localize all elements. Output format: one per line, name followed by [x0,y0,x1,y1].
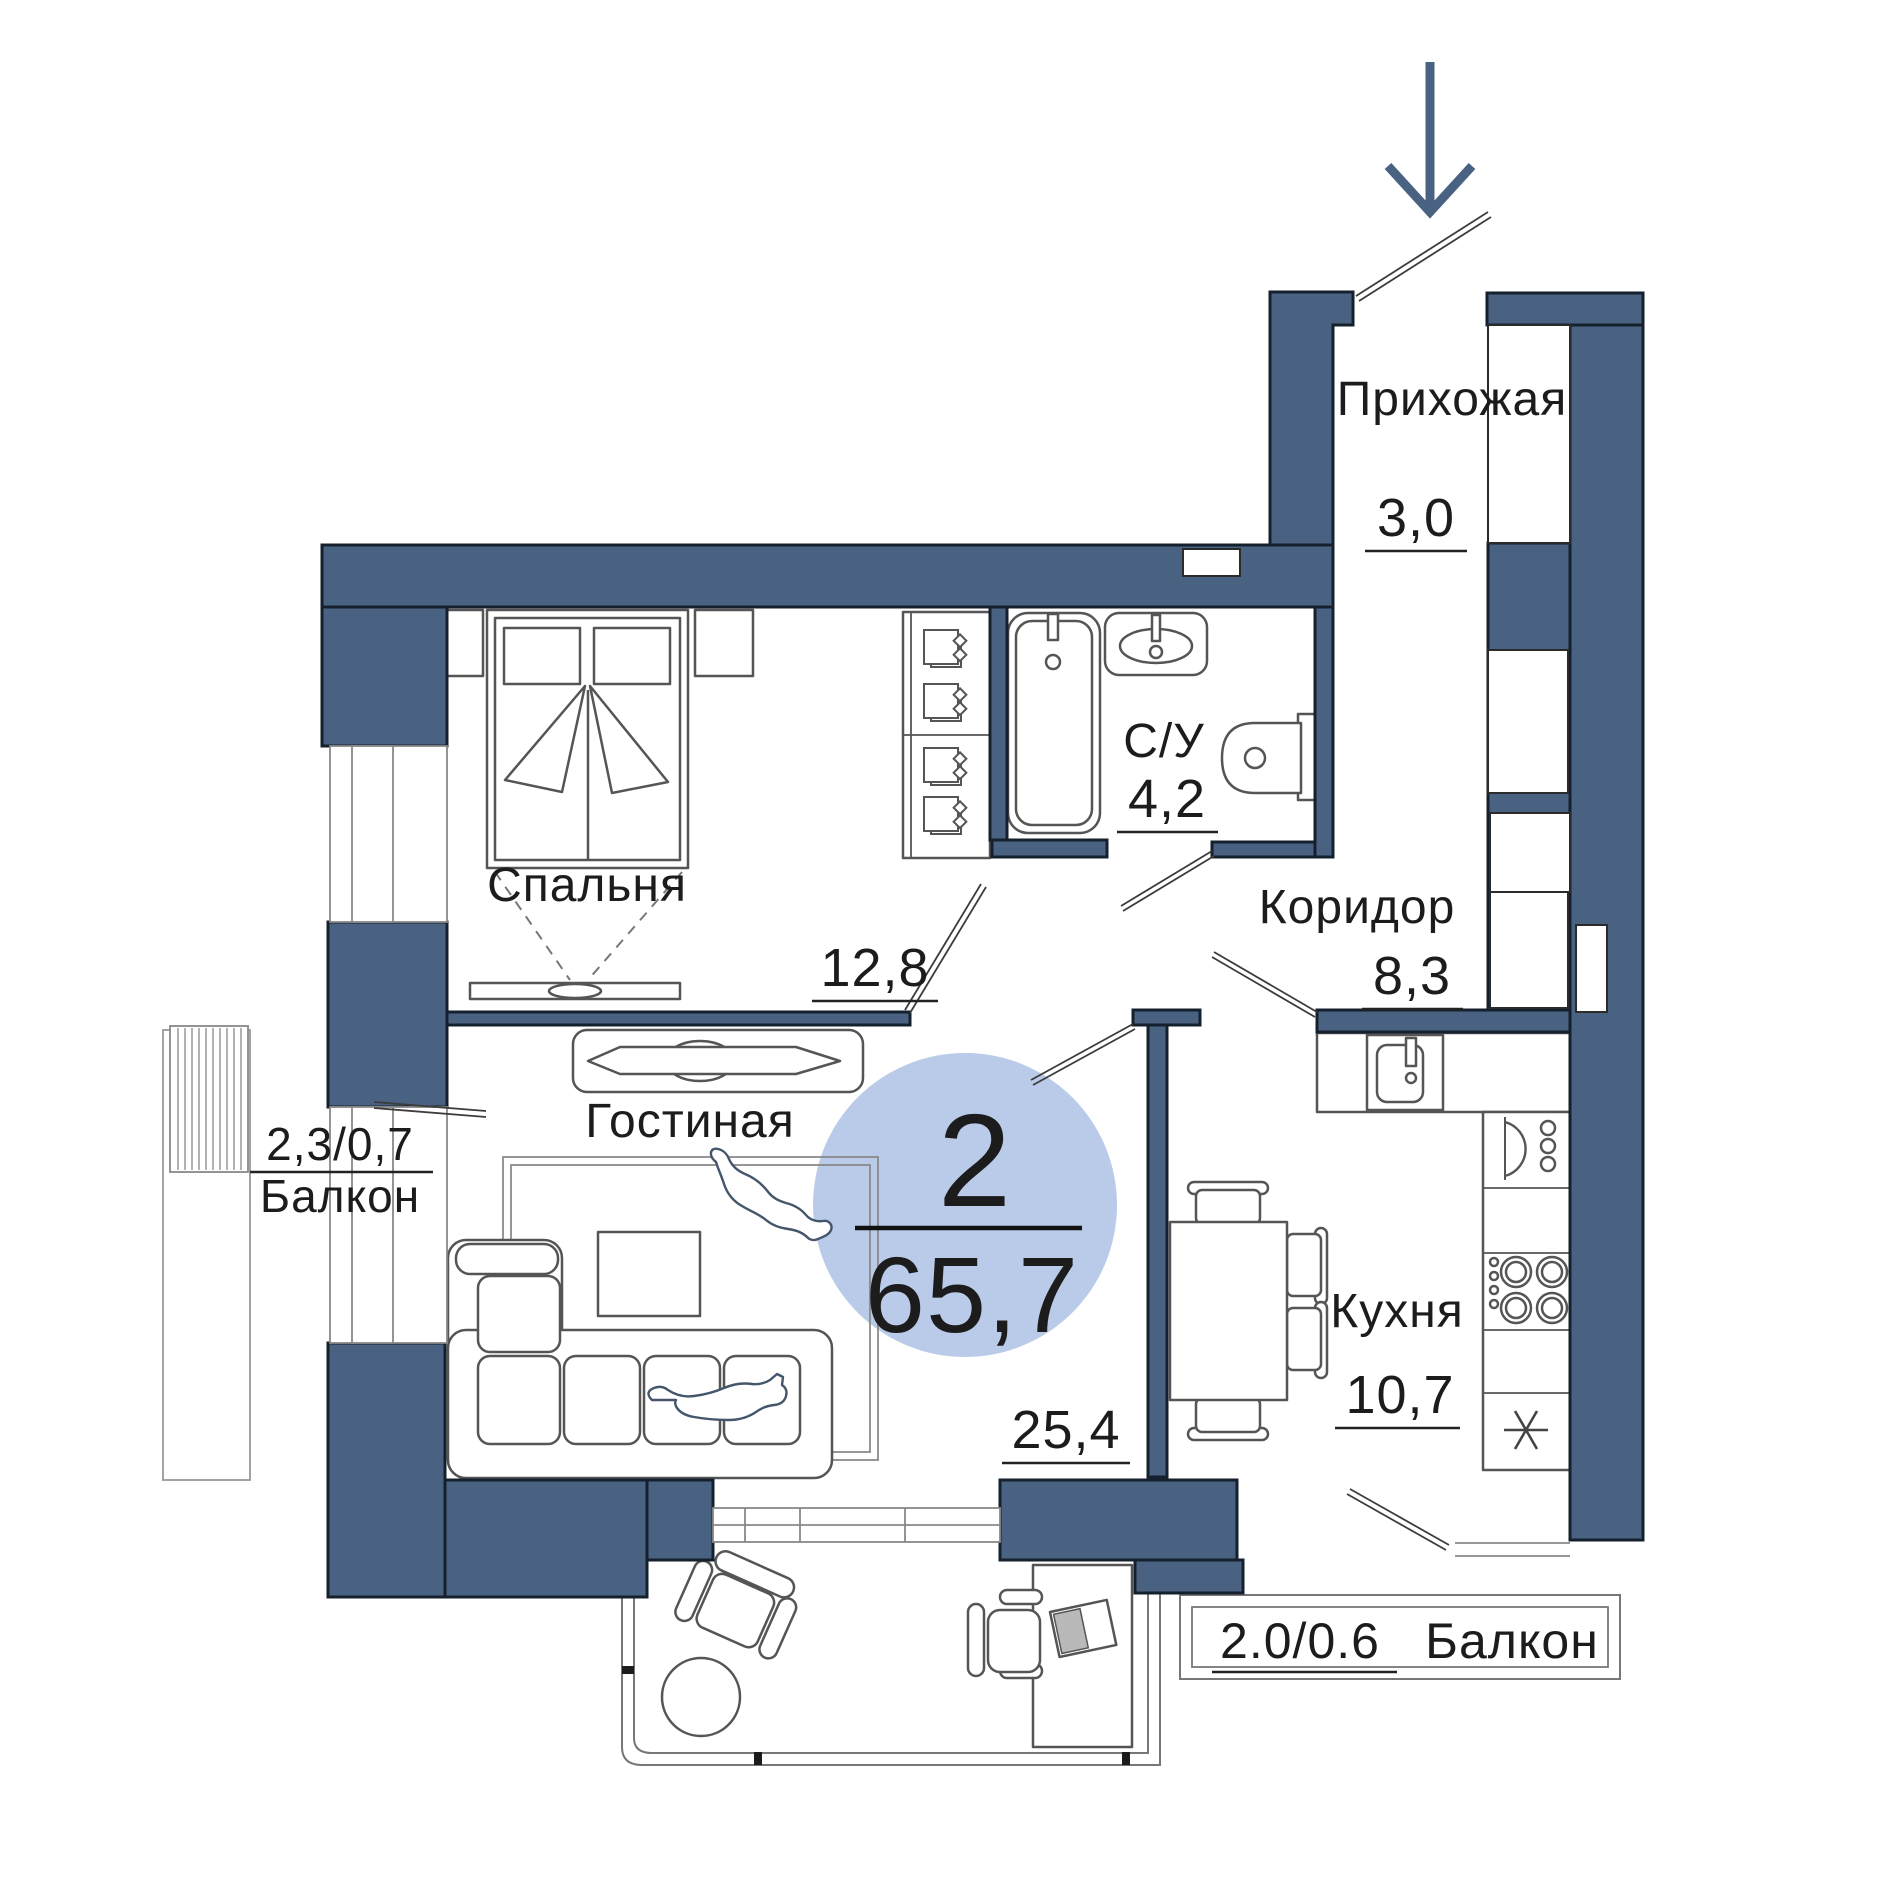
washbasin-icon [1105,613,1207,675]
coffee-table-icon [598,1232,700,1316]
kitchen-sink-icon [1367,1035,1443,1110]
hall-closet [1488,325,1570,543]
desk-icon [1033,1565,1132,1747]
room-label-living: Гостиная [585,1095,794,1148]
door-swing-kitchen [1212,952,1317,1017]
balcony-left-area: 2,3/0,7 [266,1118,414,1170]
window-terrace [713,1508,1000,1542]
door-swing-kitchen-balcony [1347,1489,1449,1550]
window-bedroom [330,746,447,922]
bathtub-icon [1008,613,1100,833]
badge-total-area: 65,7 [865,1234,1079,1355]
room-area-bathroom: 4,2 [1128,769,1206,829]
office-chair-icon [968,1590,1042,1678]
window-kitchen-balcony [1455,1543,1570,1556]
toilet-icon [1222,714,1317,800]
room-area-corridor: 8,3 [1373,946,1451,1006]
room-area-hallway: 3,0 [1377,488,1455,548]
room-area-bedroom: 12,8 [820,938,929,998]
balcony-bottom-label: Балкон [1425,1613,1599,1669]
room-label-bathroom: С/У [1123,715,1205,768]
balcony-left-label: Балкон [260,1170,420,1222]
laundry-nook [1490,813,1570,892]
wall-niche [1183,549,1240,576]
door-swing-living [1031,1024,1135,1085]
room-label-bedroom: Спальня [487,859,687,912]
round-table-icon [662,1658,740,1736]
balcony-left-railing [163,1026,250,1480]
badge-rooms-count: 2 [938,1087,1012,1234]
dining-table-icon [1170,1182,1327,1440]
shelf-nook [1490,892,1568,1008]
tv-stand-icon [573,1030,863,1092]
corridor-closet [1488,650,1568,793]
room-label-kitchen: Кухня [1330,1285,1463,1338]
bed-icon [487,610,688,868]
wardrobe-bedroom-icon [903,612,990,858]
door-swing-bathroom [1121,851,1214,911]
wall-niche [1576,925,1607,1012]
room-area-living: 25,4 [1011,1400,1120,1460]
room-area-kitchen: 10,7 [1345,1365,1454,1425]
room-label-hallway: Прихожая [1337,373,1567,426]
floor-plan: Прихожая 3,0 С/У 4,2 Коридор 8,3 Спальня… [0,0,1879,1878]
room-label-corridor: Коридор [1259,881,1456,934]
nightstand-icon [695,610,753,676]
balcony-bottom-area: 2.0/0.6 [1220,1613,1380,1669]
entrance-door-swing [1356,212,1491,301]
floor-plan-svg: Прихожая 3,0 С/У 4,2 Коридор 8,3 Спальня… [0,0,1879,1878]
entrance-arrow-icon [1388,62,1472,212]
